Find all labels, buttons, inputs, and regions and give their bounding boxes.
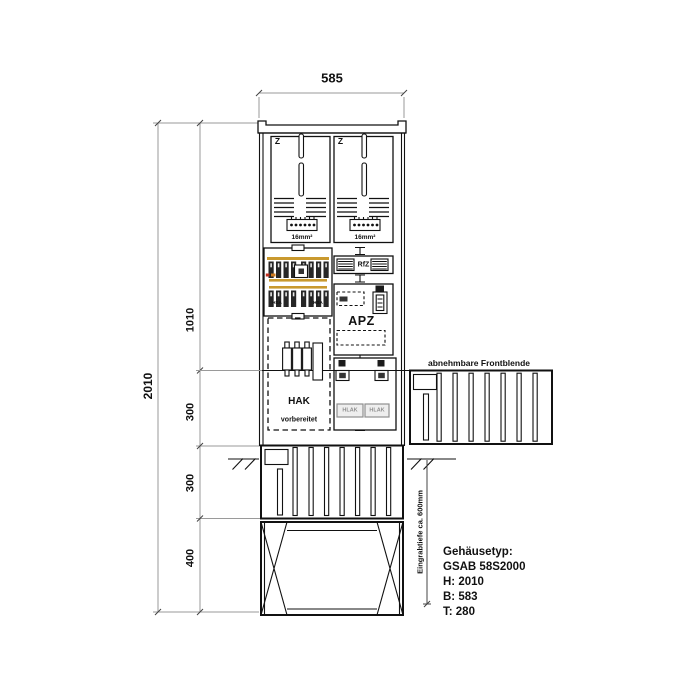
spec-height: H: 2010 [443,577,484,589]
meter-right-z-label: Z [338,137,343,146]
buried-base [261,519,403,616]
technical-drawing-page: 585 2010 1010 300 300 400 Z Z 16mm² 16mm… [0,0,700,700]
hak-note-label: vorbereitet [281,417,317,424]
hak-label: HAK [288,397,310,407]
rfz-label: RfZ [358,262,370,269]
meter-left-wire-label: 16mm² [292,234,313,241]
hsa-right-label: HSA [313,301,323,306]
meter-panel-right [334,134,393,243]
terminal-strip [287,217,317,231]
hlak-left-label: HLAK [342,408,357,414]
dim-total-height-label: 2010 [142,373,154,400]
front-panel-note-label: abnehmbare Frontblende [428,358,530,367]
dim-segment-400-label: 400 [186,548,197,566]
hlak-right-label: HLAK [369,408,384,414]
spec-width: B: 583 [443,592,478,604]
hlak-box [334,358,396,430]
spec-heading: Gehäusetyp: [443,547,513,559]
meter-right-wire-label: 16mm² [355,234,376,241]
front-panel-side-view [410,371,552,445]
dim-segment-300b-label: 300 [186,473,197,491]
hsa-busbar-block [264,245,332,319]
burial-depth-label: Eingrabtiefe ca. 600mm [416,490,424,574]
meter-left-z-label: Z [275,137,280,146]
terminal-strip [350,217,380,231]
drawing-canvas [0,0,700,700]
dim-segment-300a-label: 300 [186,402,197,420]
meter-panel-left [271,134,330,243]
spec-depth: T: 280 [443,607,475,619]
front-panel-front-view [261,446,403,519]
spec-model: GSAB 58S2000 [443,562,525,574]
apz-label: APZ [348,314,375,327]
dim-width-label: 585 [321,72,343,85]
dim-segment-1010-label: 1010 [186,308,197,332]
hsa-left-label: HSA [272,301,282,306]
